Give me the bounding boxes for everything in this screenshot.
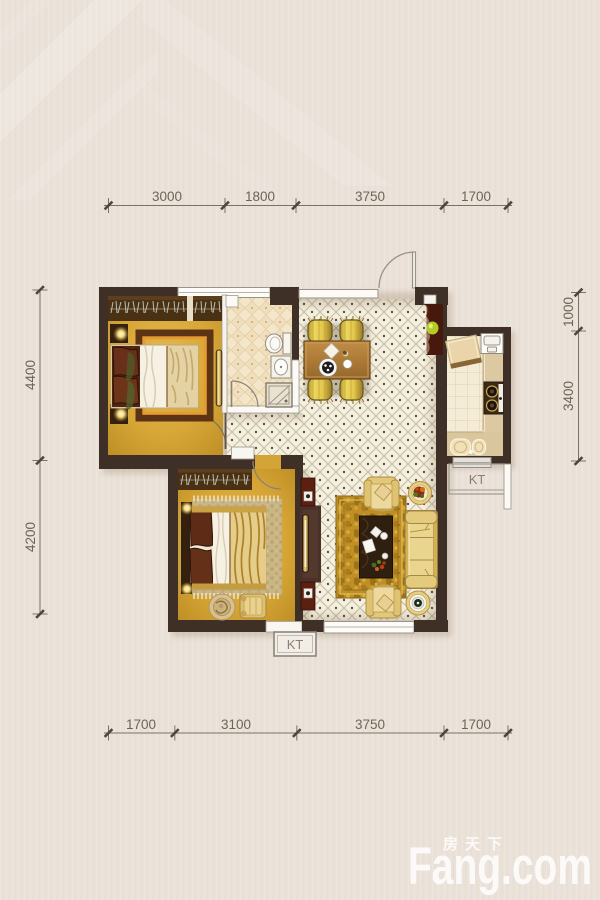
svg-text:3100: 3100 — [221, 717, 251, 732]
svg-text:Fang.com: Fang.com — [408, 837, 592, 896]
svg-text:1800: 1800 — [245, 189, 275, 204]
svg-text:KT: KT — [287, 637, 304, 652]
svg-text:1700: 1700 — [461, 717, 491, 732]
svg-text:4200: 4200 — [23, 522, 38, 552]
svg-text:1700: 1700 — [461, 189, 491, 204]
svg-text:4400: 4400 — [23, 360, 38, 390]
svg-text:1700: 1700 — [126, 717, 156, 732]
svg-text:3400: 3400 — [561, 381, 576, 411]
svg-text:KT: KT — [469, 472, 486, 487]
svg-text:3750: 3750 — [355, 717, 385, 732]
svg-text:3000: 3000 — [152, 189, 182, 204]
svg-text:1000: 1000 — [561, 297, 576, 327]
svg-text:3750: 3750 — [355, 189, 385, 204]
